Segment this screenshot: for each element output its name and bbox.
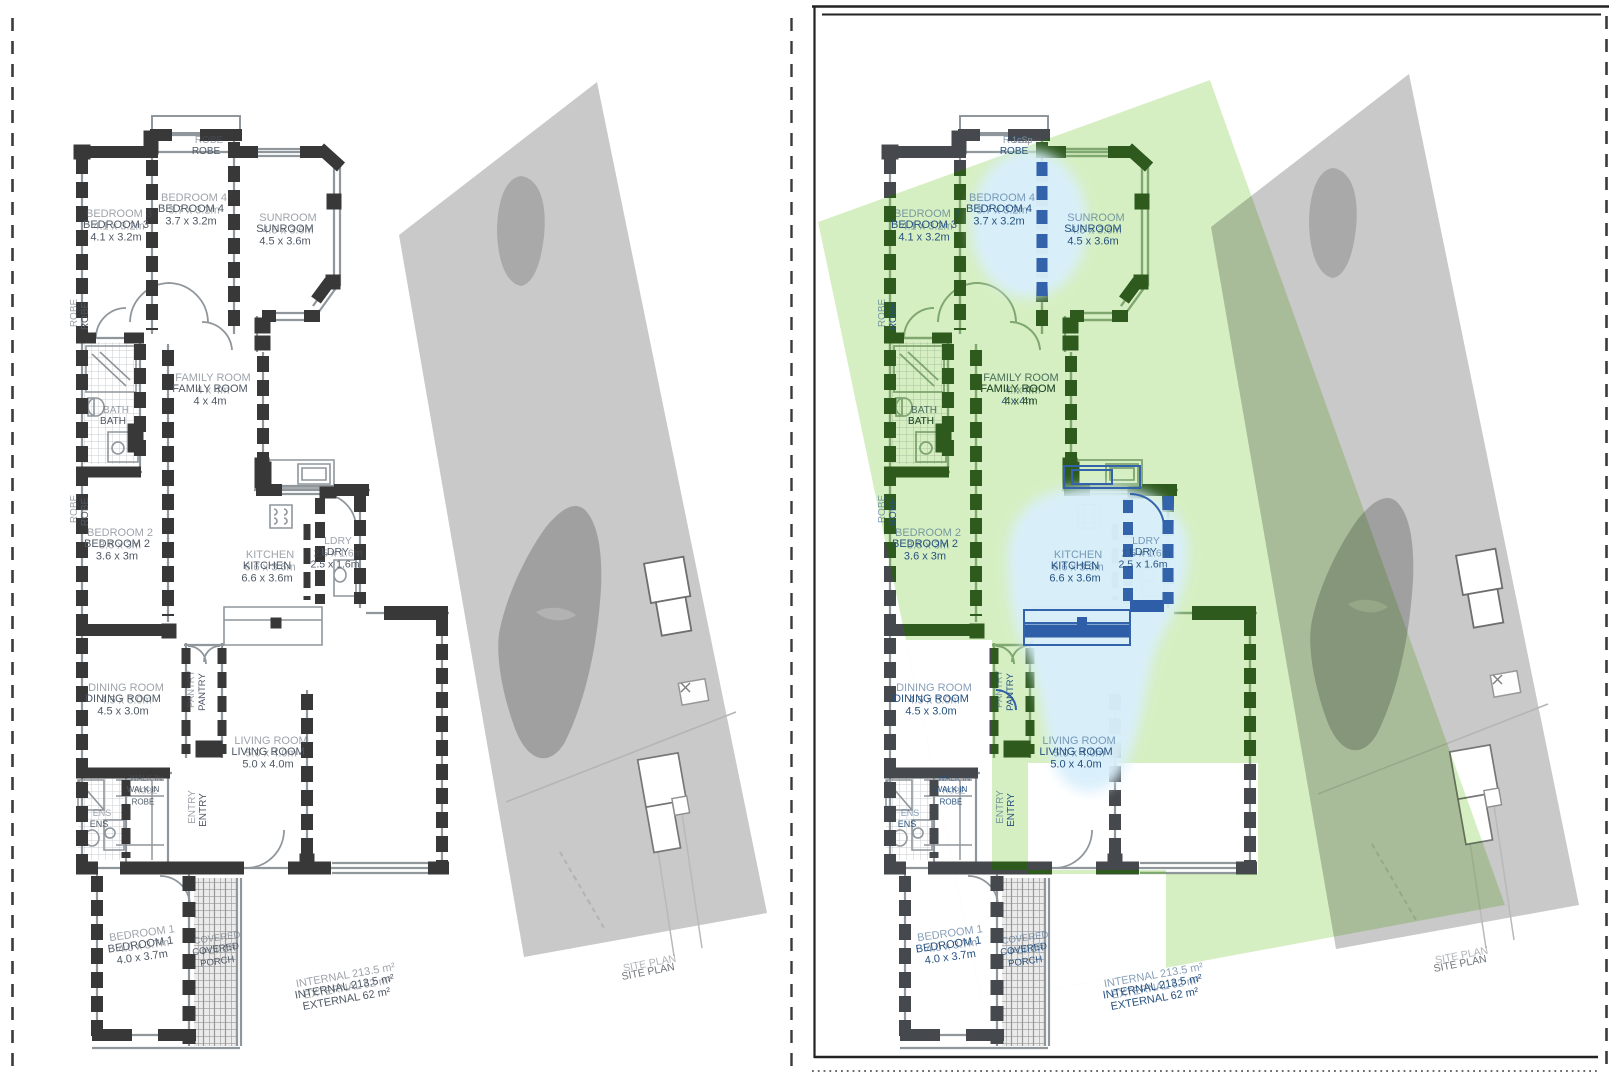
svg-text:BATH: BATH: [911, 405, 937, 416]
svg-text:4 x 4m: 4 x 4m: [1004, 396, 1037, 408]
svg-text:BATH: BATH: [908, 416, 934, 427]
svg-text:1cSp: 1cSp: [1012, 135, 1033, 145]
